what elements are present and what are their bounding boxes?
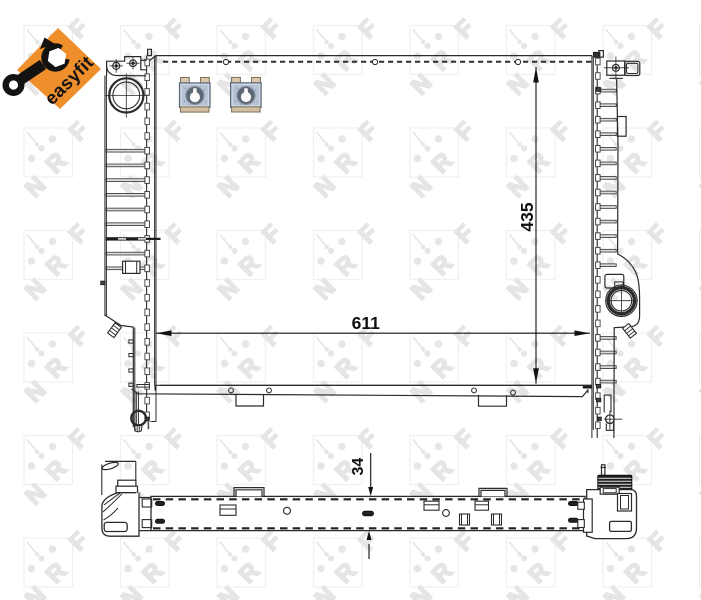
svg-text:611: 611 — [352, 313, 380, 333]
svg-text:435: 435 — [517, 202, 537, 231]
svg-text:34: 34 — [350, 458, 367, 476]
